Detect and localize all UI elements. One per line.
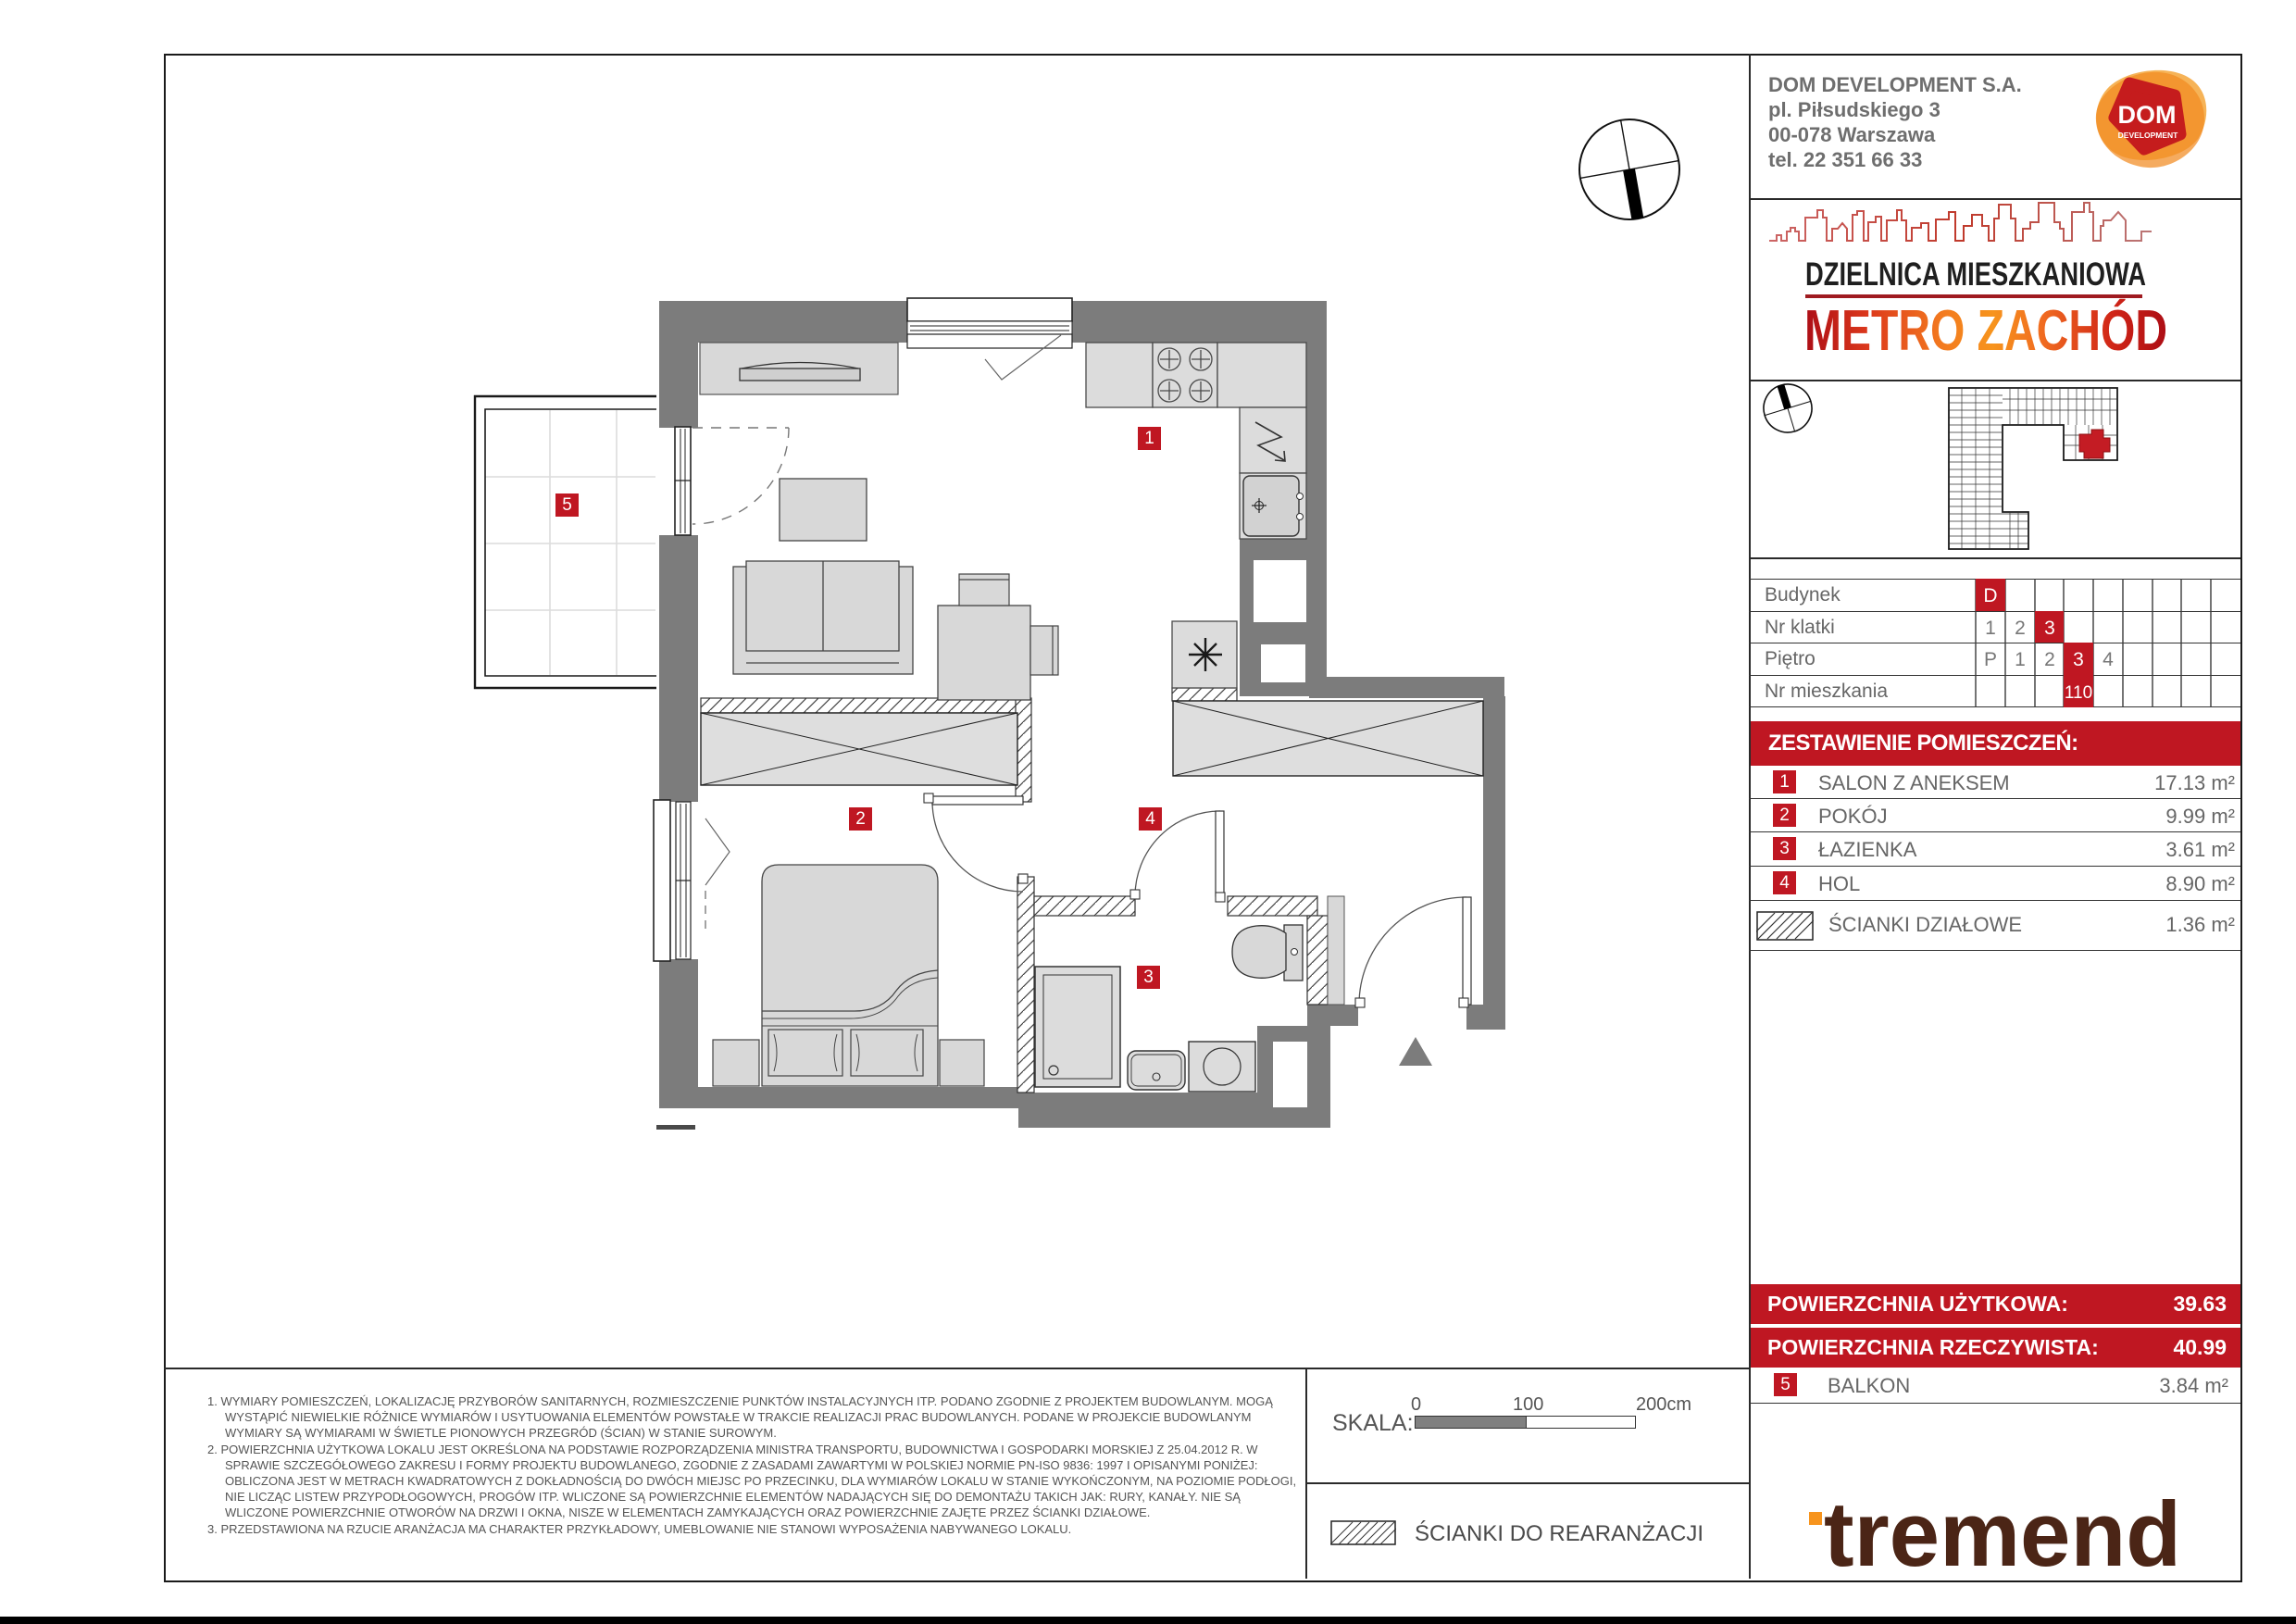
svg-text:5: 5 [562, 495, 572, 515]
svg-text:2: 2 [855, 809, 866, 829]
svg-text:3: 3 [1143, 968, 1154, 987]
svg-text:4: 4 [1145, 809, 1155, 829]
svg-text:1: 1 [1144, 429, 1154, 448]
